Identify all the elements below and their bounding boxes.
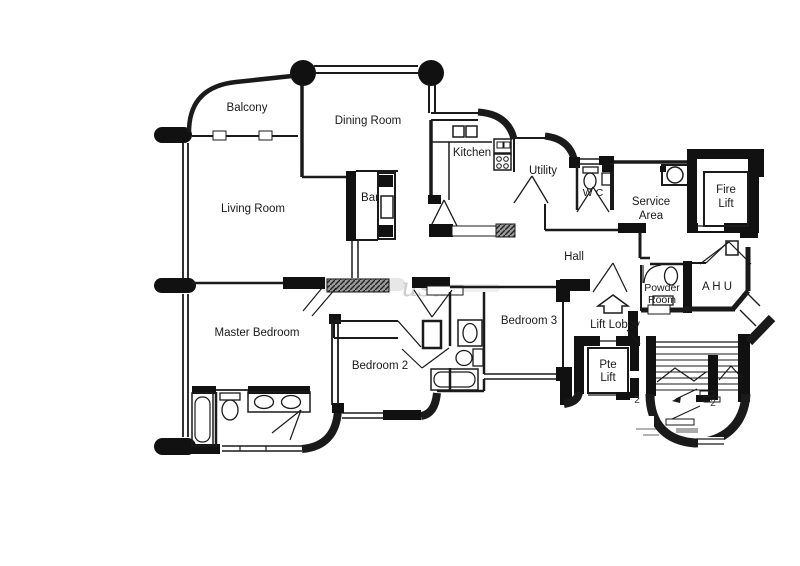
label-lift-lobby: Lift Lobby [590,319,640,331]
column [418,60,444,86]
label-master-bedroom: Master Bedroom [214,327,299,339]
label-hall: Hall [564,251,584,263]
master-bathroom [192,386,310,447]
label-balcony: Balcony [227,102,268,114]
toilet [222,400,238,420]
kitchen-sink [453,126,464,137]
door-swing [532,176,548,203]
sink [282,396,301,409]
level-mark-2: 2 [710,398,716,409]
window-sill [259,131,272,140]
window-sill [213,131,226,140]
door-swing [613,263,627,292]
label-dining-room: Dining Room [335,115,401,127]
floor-plan-page: usa [0,0,800,566]
column [154,278,196,293]
kitchen-walls [428,112,514,226]
room-labels: Balcony Dining Room Kitchen Utility W C … [214,102,735,409]
label-utility: Utility [529,165,557,177]
wc-walls [569,156,614,212]
sink [463,324,477,343]
staircase [636,294,772,448]
kitchen-hob [494,154,511,170]
label-bar: Bar [361,192,379,204]
shared-bathroom [423,292,484,390]
label-living-room: Living Room [221,203,285,215]
hall-walls [429,204,650,292]
label-pte-lift-1: Pte [599,359,616,371]
label-service-area-2: Area [639,210,664,222]
up-arrow-icon [598,295,628,313]
door-swing [706,242,728,263]
door-swing [644,265,661,283]
label-powder-room-2: Room [648,294,676,306]
label-pte-lift-2: Lift [600,372,616,384]
label-bedroom-2: Bedroom 2 [352,360,408,372]
label-wc: W C [583,187,604,199]
door-swing [593,263,613,292]
label-powder-room-1: Powder [644,282,680,294]
column [154,127,192,143]
door-swing [398,321,421,347]
label-ahu: A H U [702,281,732,293]
shower-cabinet [423,321,441,348]
door-swing [444,200,457,226]
toilet-tank [583,167,598,173]
bar-walls [346,171,398,278]
toilet-tank [473,349,483,366]
label-bedroom-3: Bedroom 3 [501,315,557,327]
door-swing [312,288,336,316]
step-shadow [676,428,698,433]
service-area-walls [614,162,692,185]
column [290,60,316,86]
door-swing [514,176,532,203]
exterior-walls [170,143,572,454]
kitchen-sink [466,126,477,137]
floor-plan-drawing: usa [0,0,800,566]
label-kitchen: Kitchen [453,147,491,159]
toilet-tank [220,393,240,400]
level-mark: 2 [634,395,640,406]
wc-sink [602,165,613,172]
door-swing [422,348,449,368]
bedroom-2-walls [334,292,450,391]
toilet [456,351,472,366]
label-fire-lift-2: Lift [718,198,734,210]
label-service-area-1: Service [632,196,670,208]
corridor-walls [192,277,558,317]
label-fire-lift-1: Fire [716,184,736,196]
sink [255,396,274,409]
bedroom-3-walls [556,280,570,367]
